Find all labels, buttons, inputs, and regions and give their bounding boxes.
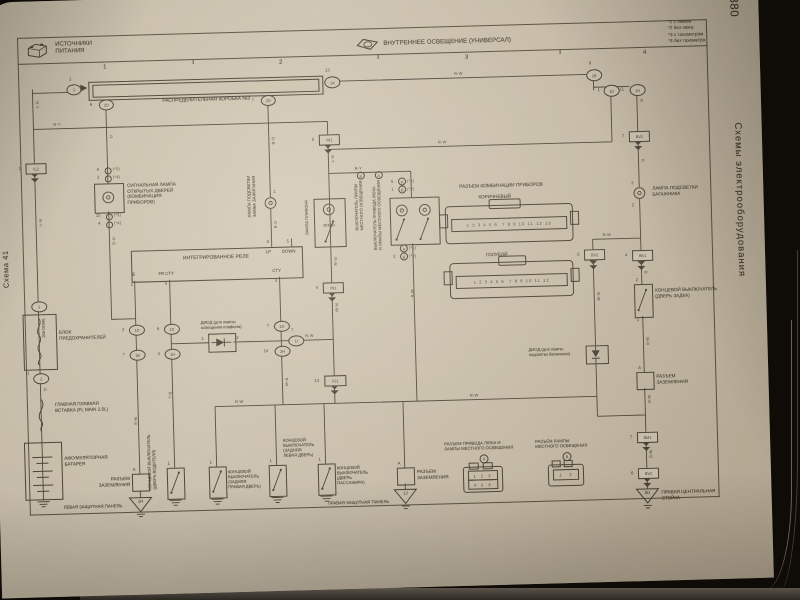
connector-BK1: BK1 <box>632 250 653 262</box>
connector-number: 9 <box>589 60 592 65</box>
relay-pin: 1 <box>131 282 134 287</box>
footnote-ref: (*3) <box>113 166 120 171</box>
rear-left-door-switch-label: КОНЦЕВОЙ ВЫКЛЮЧАТЕЛЬ (ЗАДНЯЯ ЛЕВАЯ ДВЕРЬ… <box>283 436 334 457</box>
passenger-door-switch-box <box>318 463 337 495</box>
ground-connector-label: РАЗЪЕМ ЗАЗЕМЛЕНИЯ <box>417 468 459 480</box>
ground-code: 1H <box>135 498 147 503</box>
connector-number: 2 <box>69 76 72 81</box>
map-lamp-connector-label: РАЗЪЕМ ЛАМПЫ МЕСТНОГО ОСВЕЩЕНИЯ <box>535 437 611 449</box>
trunk-diode-label: ДИОД (для лампы подсветки багажника) <box>529 346 585 357</box>
connector-BM1: BM1 <box>637 432 658 444</box>
trunk-lamp-symbol <box>634 188 645 199</box>
connector-number: 7 <box>630 434 633 439</box>
footnote-ref: (*1) <box>407 178 414 183</box>
pin-number: 9 <box>97 167 100 172</box>
connector-BV2-6: BV2 <box>638 468 659 480</box>
wire-label: R-W <box>454 71 463 76</box>
wire-label: R <box>640 159 645 162</box>
wire-label: R-Y <box>53 122 61 127</box>
footnote-ref: (*4) <box>113 174 120 179</box>
ground-connector-label: РАЗЪЕМ ЗАЗЕМЛЕНИЯ <box>656 372 700 384</box>
diagram-sheet: ИСТОЧНИКИ ПИТАНИЯ ВНУТРЕННЕЕ ОСВЕЩЕНИЕ (… <box>0 0 774 598</box>
fuse-block-label: БЛОК ПРЕДОХРАНИТЕЛЕЙ <box>59 328 121 341</box>
pin-number: 6 <box>391 179 394 184</box>
door-warning-lamp-box <box>94 183 125 214</box>
main-fusible-link-label: ГЛАВНАЯ ПЛАВКАЯ ВСТАВКА (FL MAIN 2.0L) <box>55 400 135 413</box>
wire-label: R-W <box>284 378 289 387</box>
connector-number: 4 <box>158 351 161 356</box>
wire-label: R-G <box>111 237 116 245</box>
relay-pin: 5 <box>287 239 290 244</box>
connector-IO1: IO1 <box>324 375 346 387</box>
sunroof-connector-pins: 4 5 6 <box>468 479 498 490</box>
manual-page: ИСТОЧНИКИ ПИТАНИЯ ВНУТРЕННЕЕ ОСВЕЩЕНИЕ (… <box>0 0 774 598</box>
cluster-connector-ear <box>570 211 579 225</box>
wire-label: R-Y <box>38 219 43 227</box>
trunk-diode-box <box>586 345 610 365</box>
connector-IN1-4: IN1 <box>323 282 344 294</box>
connector-number: 1 <box>27 371 30 376</box>
wire-label: R <box>639 99 644 102</box>
wire-label: W-B <box>410 289 415 297</box>
wire-label: R-W <box>438 139 447 144</box>
diode-pin: 2 <box>236 335 239 340</box>
connector-IL2: IL2 <box>25 163 46 175</box>
tailgate-switch-box <box>634 284 654 319</box>
passenger-door-switch-label: КОНЦЕВОЙ ВЫКЛЮЧАТЕЛЬ (ДВЕРЬ ПАССАЖИРА) <box>337 464 386 485</box>
ground-code: BJ <box>641 490 653 495</box>
footnote-ref: (*2) <box>407 186 414 191</box>
connector-number: 13 <box>314 378 319 383</box>
pin-number: 3 <box>631 180 634 185</box>
connector-number: 13 <box>325 67 330 72</box>
wire-label: G-B <box>271 137 276 145</box>
connector-number: 4 <box>625 252 628 257</box>
pin-number: 1 <box>269 458 272 463</box>
photo-of-wiring-manual-page: { "page": {"number":"380","side_title":"… <box>0 0 800 600</box>
wire-label: R <box>42 388 47 391</box>
pin-number: 1 <box>391 187 394 192</box>
relay-terminal-CTY: CTY <box>272 268 288 274</box>
connector-number: 1 <box>18 166 21 171</box>
pin-number: 1 <box>167 461 170 466</box>
chassis-ground <box>212 499 224 504</box>
wire-label: R-W <box>596 292 601 301</box>
ground-connector-box <box>636 372 654 390</box>
wire-label: R-W <box>602 232 611 237</box>
relay-pin: 3 <box>275 278 278 283</box>
wire-label: G-B <box>273 221 278 229</box>
connector-number: 7 <box>123 352 126 357</box>
pin-number: 1 <box>318 457 321 462</box>
battery-label: АККУМУЛЯТОРНАЯ БАТАРЕЯ <box>64 454 138 467</box>
trunk-lamp-label: ЛАМПА ПОДСВЕТКИ БАГАЖНИКА <box>652 184 716 197</box>
ignition-lamp-symbol <box>265 197 276 208</box>
wire-label: W-B <box>647 395 652 403</box>
connector-number: 7 <box>267 323 270 328</box>
connector-number: 2 <box>122 327 125 332</box>
connector-number: 5 <box>577 252 580 257</box>
door-position-label: DOOR <box>319 223 339 228</box>
diode-pin: 1 <box>201 336 204 341</box>
connector-BV2-7: BV2 <box>629 131 650 143</box>
pin-number: 1 <box>209 460 212 465</box>
connector-number: 5 <box>312 137 315 142</box>
chassis-ground <box>38 502 50 507</box>
connector-number: 6 <box>631 470 634 475</box>
map-connector-pins: 1 2 <box>553 469 579 481</box>
relay-terminal-DOWN: DOWN <box>282 248 300 254</box>
wire-label: R-W <box>334 303 339 312</box>
wire-label: R <box>109 135 114 138</box>
wire-label: W-B <box>645 337 650 345</box>
battery-box <box>24 442 64 501</box>
wire-label: R-W <box>305 333 314 338</box>
dome-diode-box <box>208 333 237 353</box>
pin-number: 1 <box>273 189 276 194</box>
ignition-lamp-label: ЛАМПА ПОДСВЕТКИ ЗАМКА ЗАЖИГАНИЯ <box>246 175 257 217</box>
ground-pin-letter: A <box>133 467 136 472</box>
connector-number: 7 <box>252 97 255 102</box>
driver-door-switch-box <box>167 467 186 499</box>
ground-connector-box <box>397 467 415 485</box>
cluster-connector-ear <box>570 268 579 282</box>
dome-diode-label: ДИОД (для лампы освещения плафона) <box>201 318 261 330</box>
ground-pin-letter: A <box>638 365 641 370</box>
footnote-ref: (*4) <box>114 220 121 225</box>
connector-IN1-5: IN1 <box>319 134 340 146</box>
cluster-connector-tab <box>498 255 526 266</box>
connector-number: 6 <box>90 102 93 107</box>
wire-label: R-W <box>470 392 479 397</box>
wire-label: W-B <box>133 417 138 425</box>
wire-label: W-B <box>648 450 653 458</box>
relay-terminal-FRCTY: FR CTY <box>158 270 184 276</box>
cluster-connector-tab <box>489 198 521 209</box>
footnote-ref: (*2) <box>409 253 416 258</box>
ground-connector-box <box>132 473 150 491</box>
wire-label: R-Y <box>330 155 335 163</box>
connector-number: 7 <box>622 133 625 138</box>
chassis-ground <box>272 497 284 502</box>
connector-number: 14 <box>263 348 268 353</box>
wire-label: R-L <box>168 392 173 399</box>
relay-pin: 4 <box>165 281 168 286</box>
pin-number: 2 <box>632 202 635 207</box>
tailgate-switch-label: КОНЦЕВОЙ ВЫКЛЮЧАТЕЛЬ (ДВЕРЬ ЗАДКА) <box>655 286 723 299</box>
pin-number: 3 <box>97 175 100 180</box>
map-lamp-switch-label: ВЫКЛЮЧАТЕЛЬ ЛАМПЫ МЕСТНОГО ОСВЕЩЕНИЯ <box>354 181 365 231</box>
pin-number: 4 <box>98 221 101 226</box>
wire-label: B <box>644 271 649 274</box>
relay-terminal-E: E <box>132 272 142 278</box>
connector-number: 4 <box>316 285 319 290</box>
relay-pin: 8 <box>267 239 270 244</box>
chassis-ground <box>170 500 182 505</box>
fuse-label: 20A DOME <box>42 318 47 338</box>
wire-label: R-W <box>235 399 244 404</box>
wire-label: R-Y <box>35 101 40 109</box>
book-edge-curve <box>777 250 798 595</box>
connector-number: 1 <box>598 87 601 92</box>
footnote-ref: (*1) <box>409 245 416 250</box>
ground-code: 1J <box>399 490 411 495</box>
wire-label: R-W <box>333 257 338 266</box>
switch-assembly-box <box>389 196 440 245</box>
cluster-connector-ear <box>443 271 452 285</box>
ground-connector-label: РАЗЪЕМ ЗАЗЕМЛЕНИЯ <box>93 476 130 488</box>
relay-terminal-LP: LP <box>266 249 278 255</box>
footnote-ref: (*3) <box>114 212 121 217</box>
pin-number: 1 <box>637 317 640 322</box>
sunroof-switch-label: ВЫКЛЮЧАТЕЛЬ ПРИВОДА ЛЮКА И ЛАМПЫ МЕСТНОГ… <box>372 180 384 250</box>
ground-pin-letter: A <box>398 461 401 466</box>
rear-right-door-switch-box <box>209 466 228 498</box>
pin-number: 2 <box>393 254 396 259</box>
wire-label: R-Y <box>355 166 363 171</box>
pin-number: 2 <box>636 277 639 282</box>
rear-left-door-switch-box <box>269 465 288 497</box>
connector-number: 7 <box>291 327 294 332</box>
pin-number: 15 <box>96 213 101 218</box>
cluster-connector-ear <box>439 214 448 228</box>
connector-BV2-5: BV2 <box>584 249 605 261</box>
connector-number: 6 <box>157 326 160 331</box>
connector-number: 11 <box>620 86 625 91</box>
dome-lamp-label: ЛАМПА ПЛАФОНА <box>304 200 310 235</box>
center-pillar-label: ПРАВАЯ ЦЕНТРАЛЬНАЯ СТОЙКА <box>661 488 727 501</box>
door-warning-lamp-label: СИГНАЛЬНАЯ ЛАМПА ОТКРЫТЫХ ДВЕРЕЙ (КОМБИН… <box>127 181 188 205</box>
